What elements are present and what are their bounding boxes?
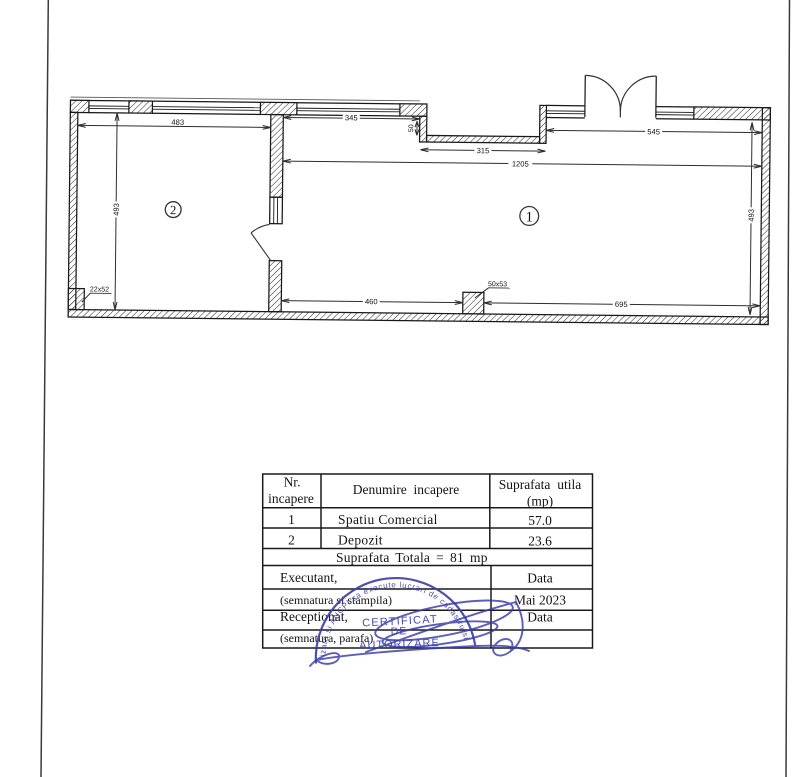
svg-text:493: 493 [112, 203, 121, 216]
svg-text:(mp): (mp) [527, 494, 553, 509]
svg-text:23.6: 23.6 [528, 534, 552, 549]
svg-text:1: 1 [526, 209, 533, 225]
svg-text:345: 345 [345, 113, 358, 122]
svg-text:50: 50 [408, 124, 415, 132]
svg-text:493: 493 [747, 209, 756, 222]
svg-text:22x52: 22x52 [90, 286, 109, 293]
svg-text:315: 315 [477, 146, 490, 155]
svg-text:460: 460 [365, 297, 378, 306]
svg-text:Data: Data [527, 571, 552, 586]
svg-text:2: 2 [170, 203, 176, 217]
svg-text:50x53: 50x53 [488, 281, 507, 288]
svg-text:incapere: incapere [268, 491, 314, 506]
svg-text:483: 483 [171, 118, 184, 127]
svg-text:Suprafata utila: Suprafata utila [499, 477, 582, 492]
svg-text:Nr.: Nr. [284, 475, 301, 490]
svg-text:2: 2 [288, 533, 295, 548]
svg-text:Mai 2023: Mai 2023 [514, 593, 566, 608]
svg-text:545: 545 [647, 127, 660, 136]
svg-text:Denumire incapere: Denumire incapere [353, 482, 460, 497]
svg-text:1: 1 [288, 512, 295, 527]
svg-text:Spatiu Comercial: Spatiu Comercial [338, 512, 438, 527]
svg-text:Executant,: Executant, [280, 570, 337, 585]
svg-text:Suprafata Totala = 81 mp: Suprafata Totala = 81 mp [336, 550, 488, 565]
svg-text:57.0: 57.0 [528, 513, 552, 528]
svg-text:1205: 1205 [512, 159, 529, 168]
svg-text:Depozit: Depozit [338, 533, 383, 548]
svg-text:Data: Data [527, 610, 552, 625]
svg-text:695: 695 [615, 300, 628, 309]
